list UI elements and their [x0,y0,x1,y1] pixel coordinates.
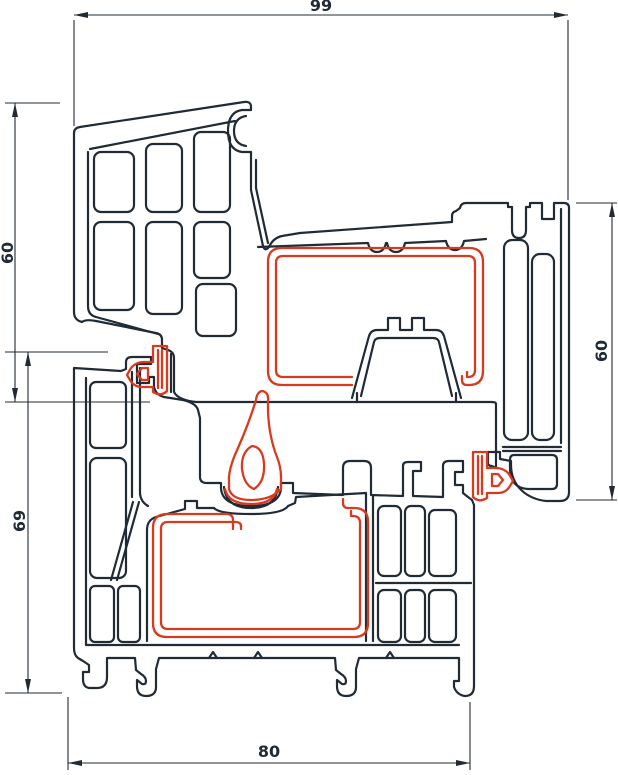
profile-section-drawing: 99 60 69 60 80 [0,0,618,775]
arrow-icon [74,12,88,18]
arrow-icon [609,203,615,217]
frame-inner-walls [86,368,471,658]
sash-chamber [532,254,554,440]
dimension-arrows [12,12,615,766]
sash-chamber [146,222,182,314]
frame-chamber [378,590,401,642]
dim-label-right: 60 [592,340,611,362]
sash-chamber [504,240,528,440]
sash-chamber [146,144,182,212]
arrow-icon [456,760,470,766]
frame-chamber [429,590,456,642]
frame-gasket-loop [153,499,368,637]
dimension-lines [5,15,617,770]
frame-chamber [405,590,425,642]
arrow-icon [68,760,82,766]
gaskets [127,248,513,637]
sash-chamber [94,222,134,310]
frame-chamber [405,506,425,576]
frame-chamber [90,458,126,578]
frame-chamber [90,382,126,448]
arrow-icon [554,12,568,18]
frame-profile [74,357,474,696]
arrow-icon [25,352,31,366]
center-gasket-teardrop [225,391,281,504]
arrow-icon [12,103,18,117]
dim-label-top: 99 [310,0,332,15]
arrow-icon [25,679,31,693]
sash-chamber [94,152,134,212]
dim-label-bottom: 80 [258,742,280,761]
arrow-icon [609,486,615,500]
frame-chamber [118,586,140,642]
dim-top-lines [74,15,568,200]
sash-outer-contour [74,102,569,501]
sash-chamber [196,284,236,336]
sash-inner-walls [88,116,561,489]
arrow-icon [12,388,18,402]
dim-label-left-lower: 69 [10,510,29,532]
dim-label-left-upper: 60 [0,242,17,264]
sash-profile [74,102,569,501]
frame-chamber [429,510,456,576]
frame-chamber [378,506,401,576]
sash-chamber [194,222,230,278]
dimension-labels: 99 60 69 60 80 [0,0,611,761]
technical-drawing-canvas: 99 60 69 60 80 [0,0,618,775]
sash-chamber [194,132,230,212]
frame-chamber [90,586,114,642]
